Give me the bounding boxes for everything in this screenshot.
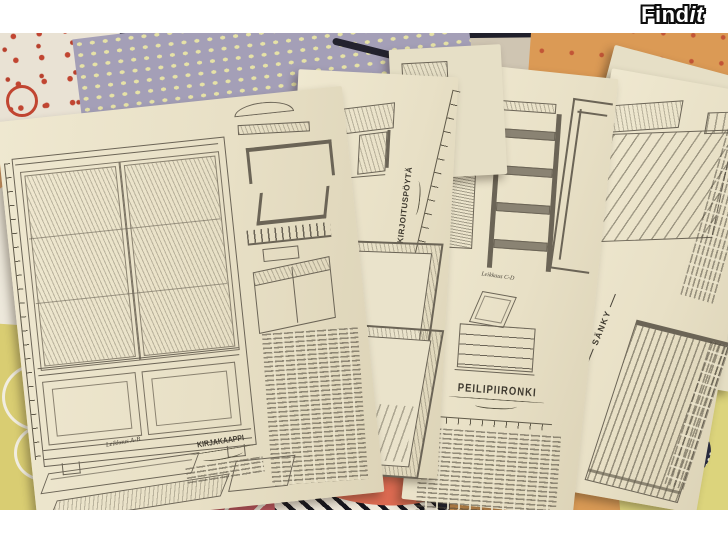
mirror-inner-line	[474, 296, 511, 324]
section-label-cd: Leikkaus C-D	[481, 271, 515, 282]
comb-moulding-detail	[246, 222, 331, 246]
designer-signature	[411, 181, 422, 216]
section-detail-3	[228, 455, 295, 492]
c-profile-inner-line	[559, 109, 582, 260]
ladder-rung	[501, 128, 555, 141]
shelf-bracket-detail-2	[256, 186, 329, 226]
ladder-rung	[493, 239, 547, 252]
lower-panel-left	[42, 372, 142, 445]
listing-photo-page: Findit	[0, 0, 728, 546]
chest-of-drawers	[457, 323, 536, 372]
door-panel-texture	[124, 156, 236, 357]
headboard	[605, 100, 684, 133]
board-detail	[238, 121, 310, 135]
strip-detail	[262, 245, 299, 262]
mirror	[469, 291, 517, 328]
desk-side-panel	[357, 131, 387, 174]
door-panel-texture	[24, 166, 136, 367]
shelf-bracket-detail	[246, 139, 335, 184]
title-dash	[609, 293, 615, 306]
mirror-dresser-drawing	[452, 291, 542, 379]
findit-logo-text: Find	[641, 2, 689, 27]
fabric-red-ring	[6, 85, 38, 117]
findit-watermark-logo: Findit	[641, 2, 704, 28]
findit-logo-text-italic: it	[690, 2, 704, 27]
photo-of-furniture-plans: KIRJAKAAPPI Leikkaus A-B	[0, 33, 728, 510]
ladder-rung	[496, 202, 550, 215]
loose-slat-piece	[704, 111, 728, 134]
panel-inset	[52, 381, 133, 437]
lower-panel-right	[141, 362, 241, 435]
moulding-arc-detail	[233, 99, 294, 117]
sheet-bookcase-plan: KIRJAKAAPPI Leikkaus A-B	[0, 86, 384, 510]
sheet-title-kirjoituspoyta: KIRJOITUSPÖYTÄ	[396, 166, 414, 244]
panel-inset	[151, 370, 232, 426]
mini-cabinet-perspective	[253, 256, 336, 334]
glass-door-right	[119, 151, 239, 360]
top-white-band: Findit	[0, 0, 728, 33]
c-profile-arm	[577, 111, 607, 117]
dresser-title-block: PEILIPIIRONKI	[422, 375, 572, 414]
designer-signature	[475, 401, 517, 411]
bookcase-drawing	[12, 136, 257, 467]
bottom-white-band	[0, 510, 728, 546]
